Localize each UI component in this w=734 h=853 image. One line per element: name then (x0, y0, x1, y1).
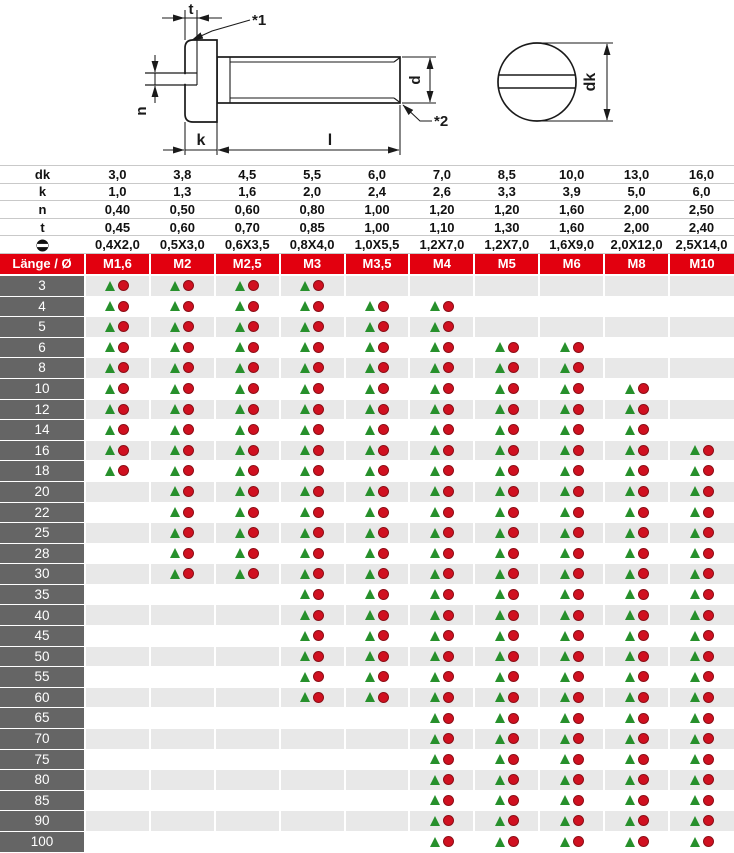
availability-cell (85, 646, 150, 667)
availability-markers (235, 465, 259, 476)
availability-markers (365, 589, 389, 600)
availability-cell (474, 337, 539, 358)
availability-cell (409, 646, 474, 667)
availability-cell (539, 729, 604, 750)
triangle-marker-icon (690, 672, 700, 682)
circle-marker-icon (508, 383, 519, 394)
triangle-marker-icon (625, 692, 635, 702)
availability-markers (430, 321, 454, 332)
matrix-row: 10 (0, 378, 734, 399)
availability-cell (215, 502, 280, 523)
availability-cell (150, 667, 215, 688)
availability-markers (300, 568, 324, 579)
availability-cell (215, 667, 280, 688)
circle-marker-icon (443, 589, 454, 600)
availability-cell (85, 543, 150, 564)
triangle-marker-icon (365, 548, 375, 558)
availability-cell (409, 296, 474, 317)
availability-markers (300, 301, 324, 312)
availability-cell (669, 605, 734, 626)
matrix-row: 25 (0, 523, 734, 544)
triangle-marker-icon (495, 589, 505, 599)
availability-markers (235, 321, 259, 332)
circle-marker-icon (183, 527, 194, 538)
availability-cell (345, 626, 410, 647)
availability-cell (604, 502, 669, 523)
availability-cell (539, 584, 604, 605)
note2-leader-line (403, 105, 432, 121)
availability-markers (365, 445, 389, 456)
circle-marker-icon (703, 754, 714, 765)
availability-cell (474, 564, 539, 585)
availability-cell (539, 667, 604, 688)
triangle-marker-icon (300, 672, 310, 682)
availability-cell (85, 358, 150, 379)
circle-marker-icon (638, 486, 649, 497)
circle-marker-icon (378, 383, 389, 394)
matrix-row: 90 (0, 811, 734, 832)
triangle-marker-icon (495, 651, 505, 661)
availability-markers (300, 630, 324, 641)
availability-cell (280, 605, 345, 626)
triangle-marker-icon (170, 342, 180, 352)
availability-markers (430, 445, 454, 456)
circle-marker-icon (508, 774, 519, 785)
availability-markers (235, 527, 259, 538)
triangle-marker-icon (690, 651, 700, 661)
circle-marker-icon (508, 795, 519, 806)
triangle-marker-icon (560, 486, 570, 496)
triangle-marker-icon (560, 466, 570, 476)
availability-cell (604, 729, 669, 750)
availability-cell (474, 378, 539, 399)
availability-markers (690, 548, 714, 559)
circle-marker-icon (443, 836, 454, 847)
length-label: 100 (0, 832, 85, 853)
triangle-marker-icon (300, 486, 310, 496)
availability-cell (539, 399, 604, 420)
spec-row: 0,4X2,00,5X3,00,6X3,50,8X4,01,0X5,51,2X7… (0, 236, 734, 254)
matrix-row: 8 (0, 358, 734, 379)
circle-marker-icon (573, 548, 584, 559)
availability-markers (300, 280, 324, 291)
availability-cell (345, 646, 410, 667)
availability-cell (345, 502, 410, 523)
triangle-marker-icon (300, 651, 310, 661)
circle-marker-icon (378, 342, 389, 353)
availability-cell (474, 811, 539, 832)
availability-markers (170, 507, 194, 518)
availability-cell (669, 523, 734, 544)
triangle-marker-icon (690, 775, 700, 785)
circle-marker-icon (443, 445, 454, 456)
circle-marker-icon (443, 692, 454, 703)
triangle-marker-icon (170, 363, 180, 373)
availability-cell (150, 832, 215, 853)
circle-marker-icon (508, 568, 519, 579)
availability-cell (539, 626, 604, 647)
availability-markers (495, 383, 519, 394)
triangle-marker-icon (300, 363, 310, 373)
availability-markers (105, 383, 129, 394)
circle-marker-icon (703, 527, 714, 538)
availability-markers (690, 465, 714, 476)
availability-markers (365, 548, 389, 559)
length-label: 45 (0, 626, 85, 647)
availability-markers (495, 548, 519, 559)
availability-markers (235, 507, 259, 518)
triangle-marker-icon (235, 322, 245, 332)
availability-cell (604, 708, 669, 729)
availability-markers (430, 610, 454, 621)
triangle-marker-icon (625, 837, 635, 847)
availability-cell (280, 832, 345, 853)
triangle-marker-icon (560, 672, 570, 682)
availability-markers (560, 424, 584, 435)
triangle-marker-icon (300, 342, 310, 352)
availability-cell (85, 811, 150, 832)
matrix-row: 70 (0, 729, 734, 750)
availability-cell (669, 296, 734, 317)
availability-cell (150, 729, 215, 750)
triangle-marker-icon (625, 466, 635, 476)
availability-cell (150, 296, 215, 317)
availability-cell (474, 317, 539, 338)
matrix-row: 75 (0, 749, 734, 770)
matrix-row: 12 (0, 399, 734, 420)
availability-cell (669, 378, 734, 399)
triangle-marker-icon (300, 507, 310, 517)
circle-marker-icon (313, 527, 324, 538)
triangle-marker-icon (105, 363, 115, 373)
availability-cell (604, 605, 669, 626)
circle-marker-icon (703, 610, 714, 621)
availability-cell (150, 440, 215, 461)
availability-cell (345, 811, 410, 832)
availability-cell (409, 626, 474, 647)
triangle-marker-icon (430, 569, 440, 579)
availability-markers (170, 548, 194, 559)
length-label: 65 (0, 708, 85, 729)
availability-cell (215, 584, 280, 605)
circle-marker-icon (703, 671, 714, 682)
availability-cell (474, 729, 539, 750)
triangle-marker-icon (560, 507, 570, 517)
availability-cell (669, 790, 734, 811)
availability-cell (474, 543, 539, 564)
circle-marker-icon (443, 465, 454, 476)
availability-markers (430, 733, 454, 744)
availability-cell (345, 481, 410, 502)
circle-marker-icon (638, 589, 649, 600)
availability-markers (560, 754, 584, 765)
availability-markers (170, 280, 194, 291)
circle-marker-icon (443, 630, 454, 641)
triangle-marker-icon (430, 775, 440, 785)
circle-marker-icon (443, 671, 454, 682)
triangle-marker-icon (300, 528, 310, 538)
triangle-marker-icon (235, 466, 245, 476)
availability-matrix: Länge / ØM1,6M2M2,5M3M3,5M4M5M6M8M10 345… (0, 254, 734, 853)
circle-marker-icon (313, 589, 324, 600)
availability-markers (365, 321, 389, 332)
availability-markers (430, 754, 454, 765)
availability-cell (215, 564, 280, 585)
triangle-marker-icon (365, 363, 375, 373)
availability-cell (539, 378, 604, 399)
triangle-marker-icon (235, 404, 245, 414)
triangle-marker-icon (560, 816, 570, 826)
circle-marker-icon (573, 610, 584, 621)
availability-markers (625, 795, 649, 806)
availability-markers (365, 362, 389, 373)
availability-cell (85, 687, 150, 708)
availability-cell (85, 790, 150, 811)
availability-cell (150, 523, 215, 544)
triangle-marker-icon (430, 486, 440, 496)
availability-cell (409, 461, 474, 482)
availability-cell (669, 646, 734, 667)
spec-row-label: dk (0, 166, 85, 184)
availability-cell (85, 564, 150, 585)
availability-cell (345, 770, 410, 791)
circle-marker-icon (573, 424, 584, 435)
availability-cell (150, 502, 215, 523)
triangle-marker-icon (300, 548, 310, 558)
spec-value: 2,4 (345, 183, 410, 201)
availability-markers (300, 342, 324, 353)
spec-value: 1,10 (409, 218, 474, 236)
triangle-marker-icon (560, 795, 570, 805)
triangle-marker-icon (105, 281, 115, 291)
circle-marker-icon (183, 280, 194, 291)
availability-cell (280, 523, 345, 544)
triangle-marker-icon (495, 692, 505, 702)
availability-cell (280, 543, 345, 564)
availability-cell (345, 378, 410, 399)
spec-value: 1,3 (150, 183, 215, 201)
availability-markers (300, 362, 324, 373)
availability-cell (215, 275, 280, 296)
availability-cell (409, 523, 474, 544)
circle-marker-icon (443, 507, 454, 518)
availability-markers (625, 671, 649, 682)
availability-cell (409, 770, 474, 791)
availability-markers (495, 795, 519, 806)
circle-marker-icon (573, 815, 584, 826)
length-label: 90 (0, 811, 85, 832)
length-label: 40 (0, 605, 85, 626)
spec-value: 0,5X3,0 (150, 236, 215, 254)
triangle-marker-icon (170, 281, 180, 291)
availability-cell (474, 605, 539, 626)
matrix-row: 6 (0, 337, 734, 358)
availability-cell (409, 584, 474, 605)
matrix-row: 65 (0, 708, 734, 729)
availability-markers (560, 404, 584, 415)
circle-marker-icon (573, 589, 584, 600)
availability-cell (150, 378, 215, 399)
availability-markers (365, 465, 389, 476)
availability-cell (539, 502, 604, 523)
triangle-marker-icon (625, 425, 635, 435)
circle-marker-icon (573, 362, 584, 373)
circle-marker-icon (508, 486, 519, 497)
spec-value: 1,00 (345, 201, 410, 219)
circle-marker-icon (118, 342, 129, 353)
spec-value: 1,0X5,5 (345, 236, 410, 254)
length-label: 75 (0, 749, 85, 770)
spec-value: 0,4X2,0 (85, 236, 150, 254)
triangle-marker-icon (495, 425, 505, 435)
circle-marker-icon (508, 589, 519, 600)
triangle-marker-icon (495, 466, 505, 476)
availability-cell (150, 749, 215, 770)
spec-value: 13,0 (604, 166, 669, 184)
circle-marker-icon (313, 610, 324, 621)
matrix-column-header: M5 (474, 254, 539, 275)
circle-marker-icon (248, 301, 259, 312)
availability-markers (560, 527, 584, 538)
length-label: 10 (0, 378, 85, 399)
circle-marker-icon (638, 610, 649, 621)
availability-markers (495, 754, 519, 765)
availability-cell (85, 832, 150, 853)
availability-markers (560, 362, 584, 373)
availability-cell (215, 626, 280, 647)
availability-markers (625, 465, 649, 476)
triangle-marker-icon (170, 486, 180, 496)
triangle-marker-icon (560, 589, 570, 599)
availability-cell (215, 729, 280, 750)
availability-cell (604, 811, 669, 832)
availability-cell (669, 440, 734, 461)
availability-markers (300, 507, 324, 518)
availability-cell (150, 770, 215, 791)
availability-markers (365, 424, 389, 435)
availability-cell (539, 337, 604, 358)
availability-markers (625, 692, 649, 703)
screw-technical-drawing: t *1 n k l d *2 dk (0, 0, 734, 165)
availability-cell (215, 420, 280, 441)
availability-markers (625, 630, 649, 641)
triangle-marker-icon (105, 384, 115, 394)
availability-markers (300, 589, 324, 600)
spec-value: 7,0 (409, 166, 474, 184)
availability-cell (215, 811, 280, 832)
circle-marker-icon (638, 548, 649, 559)
circle-marker-icon (638, 713, 649, 724)
triangle-marker-icon (495, 342, 505, 352)
circle-marker-icon (638, 527, 649, 538)
circle-marker-icon (638, 507, 649, 518)
triangle-marker-icon (495, 548, 505, 558)
circle-marker-icon (573, 836, 584, 847)
availability-cell (539, 543, 604, 564)
circle-marker-icon (313, 383, 324, 394)
availability-cell (604, 770, 669, 791)
triangle-marker-icon (365, 404, 375, 414)
circle-marker-icon (183, 465, 194, 476)
availability-cell (669, 543, 734, 564)
circle-marker-icon (638, 754, 649, 765)
circle-marker-icon (248, 465, 259, 476)
availability-cell (669, 481, 734, 502)
circle-marker-icon (508, 507, 519, 518)
note1-leader-line (192, 20, 250, 40)
availability-cell (669, 811, 734, 832)
matrix-row: 50 (0, 646, 734, 667)
circle-marker-icon (573, 568, 584, 579)
availability-cell (604, 564, 669, 585)
availability-markers (365, 568, 389, 579)
availability-cell (345, 749, 410, 770)
availability-cell (150, 790, 215, 811)
spec-value: 0,45 (85, 218, 150, 236)
triangle-marker-icon (365, 301, 375, 311)
matrix-row: 80 (0, 770, 734, 791)
availability-cell (409, 481, 474, 502)
availability-cell (345, 584, 410, 605)
availability-markers (625, 445, 649, 456)
availability-markers (235, 486, 259, 497)
triangle-marker-icon (430, 713, 440, 723)
circle-marker-icon (573, 445, 584, 456)
availability-cell (280, 687, 345, 708)
availability-cell (669, 461, 734, 482)
triangle-marker-icon (235, 528, 245, 538)
availability-cell (539, 687, 604, 708)
availability-markers (560, 445, 584, 456)
length-label: 3 (0, 275, 85, 296)
circle-marker-icon (183, 321, 194, 332)
availability-cell (85, 461, 150, 482)
availability-cell (539, 770, 604, 791)
triangle-marker-icon (690, 734, 700, 744)
circle-marker-icon (443, 321, 454, 332)
availability-cell (409, 687, 474, 708)
triangle-marker-icon (625, 734, 635, 744)
availability-markers (430, 342, 454, 353)
label-note2: *2 (434, 113, 448, 130)
length-label: 60 (0, 687, 85, 708)
spec-row-label: t (0, 218, 85, 236)
availability-markers (105, 404, 129, 415)
triangle-marker-icon (495, 631, 505, 641)
availability-markers (300, 671, 324, 682)
availability-markers (430, 486, 454, 497)
availability-cell (280, 667, 345, 688)
availability-markers (560, 568, 584, 579)
availability-markers (495, 836, 519, 847)
availability-cell (604, 420, 669, 441)
triangle-marker-icon (430, 734, 440, 744)
availability-markers (625, 507, 649, 518)
length-label: 16 (0, 440, 85, 461)
slot-cut-mask (183, 74, 198, 84)
triangle-marker-icon (300, 281, 310, 291)
circle-marker-icon (183, 383, 194, 394)
spec-value: 1,2X7,0 (474, 236, 539, 254)
triangle-marker-icon (625, 569, 635, 579)
triangle-marker-icon (365, 672, 375, 682)
availability-cell (474, 523, 539, 544)
circle-marker-icon (638, 774, 649, 785)
circle-marker-icon (638, 836, 649, 847)
circle-marker-icon (183, 486, 194, 497)
availability-markers (560, 589, 584, 600)
availability-cell (604, 275, 669, 296)
